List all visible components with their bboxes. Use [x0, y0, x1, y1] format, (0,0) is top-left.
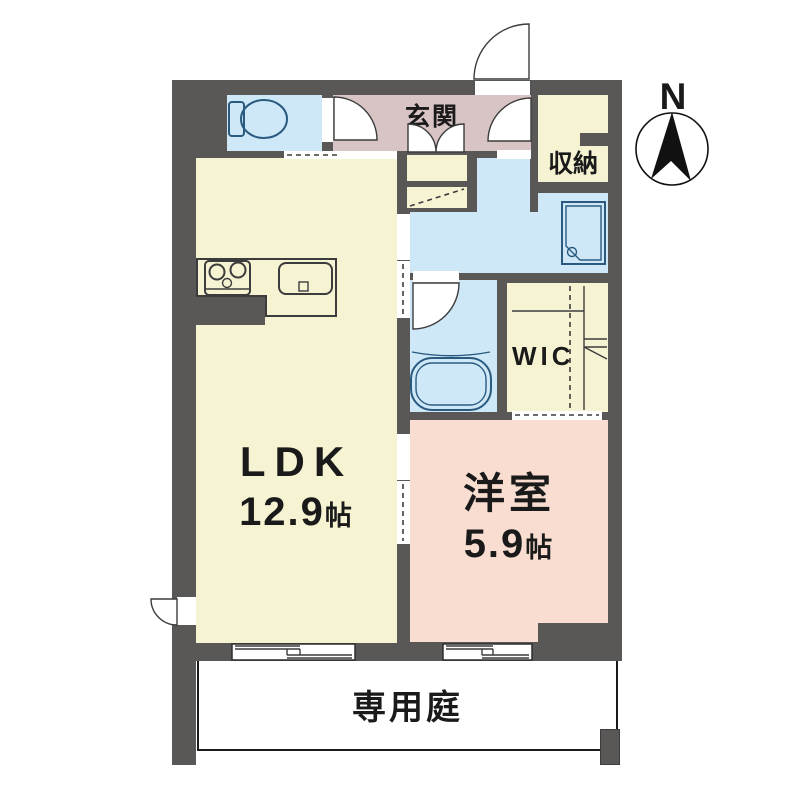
storage-label: 収納	[538, 144, 608, 180]
ldk-sliding-door-pocket	[284, 151, 340, 159]
western-size-label: 5.9帖	[464, 522, 555, 567]
compass-icon	[636, 112, 708, 185]
storage-wall-stub	[580, 133, 608, 146]
bath-door-opening	[413, 271, 459, 282]
washroom-door-opening	[497, 150, 531, 159]
ldk-western-sliding-pocket	[397, 481, 410, 544]
room-garden: 専用庭	[197, 658, 618, 751]
kitchen-counter	[196, 258, 337, 297]
room-refrigerator-space	[407, 187, 467, 208]
room-genkan: 玄関	[333, 95, 531, 151]
kitchen-half-wall	[172, 297, 265, 325]
wic-sliding-door	[512, 411, 602, 420]
kitchen-counter-return	[265, 295, 337, 317]
room-washroom	[538, 193, 608, 212]
western-corner-wall	[538, 623, 608, 642]
entrance-door-arc-icon	[474, 24, 529, 79]
wic-label: WIC	[512, 341, 575, 372]
ldk-size-label: 12.9帖	[239, 490, 354, 535]
ldk-door-opening	[340, 151, 397, 159]
ldk-label: LDK	[240, 440, 353, 484]
ldk-washroom-sliding-pocket	[397, 261, 410, 318]
floor-plan: 専用庭 玄関 収納 WIC LDK 12.9帖 洋室 5.9帖	[0, 0, 800, 800]
garden-label: 専用庭	[352, 680, 463, 729]
garden-door-opening	[177, 597, 196, 625]
western-label: 洋室	[463, 472, 555, 516]
genkan-label: 玄関	[405, 97, 459, 151]
room-washroom	[410, 212, 608, 273]
room-bath	[410, 280, 497, 412]
room-toilet	[227, 95, 322, 151]
ldk-washroom-opening	[397, 214, 410, 260]
ldk-western-opening	[397, 434, 410, 480]
toilet-door-opening	[322, 98, 333, 142]
room-washroom	[477, 158, 530, 212]
corner-pillar	[600, 729, 620, 765]
room-wic: WIC	[507, 283, 608, 412]
entrance-door-opening	[473, 81, 532, 95]
room-western: 洋室 5.9帖	[410, 420, 608, 642]
room-ldk: LDK 12.9帖	[196, 158, 397, 643]
compass-north-label: N	[653, 76, 693, 118]
room-shoe-closet	[407, 155, 467, 181]
left-wall-extension	[172, 661, 196, 765]
